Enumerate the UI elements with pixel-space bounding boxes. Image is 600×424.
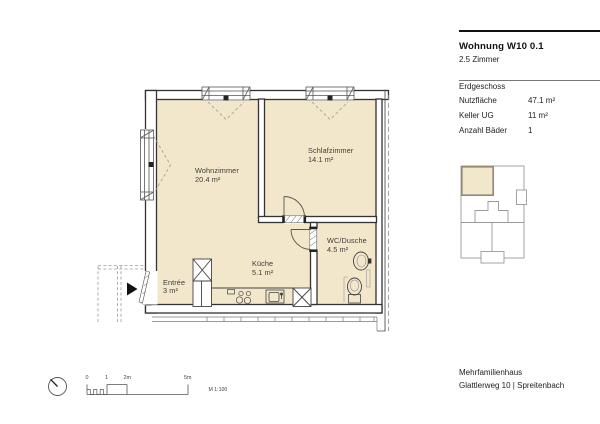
facade-strip xyxy=(152,317,377,331)
room-label-entree: Entrée 3 m² xyxy=(163,279,185,296)
scale-label-5m: 5m xyxy=(184,375,192,381)
panel-divider-rule xyxy=(459,80,600,81)
room-area: 3 m² xyxy=(163,287,185,296)
row-value-keller: 11 m² xyxy=(528,111,548,120)
exterior-dashed-outline xyxy=(98,266,144,325)
room-label-wohnzimmer: Wohnzimmer 20.4 m² xyxy=(195,167,239,184)
site-plan-mini-map xyxy=(461,166,527,263)
scale-ratio-label: M 1:100 xyxy=(209,387,228,393)
room-area: 4.5 m² xyxy=(327,246,367,255)
kitchen-tall-cabinet xyxy=(193,259,212,307)
room-label-kueche: Küche 5.1 m² xyxy=(252,260,273,277)
scale-label-0: 0 xyxy=(86,375,89,381)
room-area: 20.4 m² xyxy=(195,176,239,185)
room-label-wc-dusche: WC/Dusche 4.5 m² xyxy=(327,237,367,254)
entrance-arrow-icon xyxy=(127,283,138,296)
row-label-baeder: Anzahl Bäder xyxy=(459,126,507,135)
north-compass-icon xyxy=(49,378,67,396)
row-label-keller: Keller UG xyxy=(459,111,494,120)
room-label-schlafzimmer: Schlafzimmer 14.1 m² xyxy=(308,147,353,164)
floor-plan-drawing xyxy=(0,0,600,424)
scale-bar xyxy=(87,385,188,395)
footer-building-type: Mehrfamilienhaus xyxy=(459,368,522,377)
room-area: 5.1 m² xyxy=(252,269,273,278)
floorplan-sheet: Wohnzimmer 20.4 m² Schlafzimmer 14.1 m² … xyxy=(0,0,600,424)
footer-address: Glattlerweg 10 | Spreitenbach xyxy=(459,381,564,390)
apartment-subtitle: 2.5 Zimmer xyxy=(459,55,499,64)
site-plan-unit-highlight xyxy=(462,167,493,195)
kitchen-appliance-box xyxy=(293,288,311,307)
row-value-nutzflaeche: 47.1 m² xyxy=(528,96,555,105)
row-value-baeder: 1 xyxy=(528,126,532,135)
scale-label-1: 1 xyxy=(105,375,108,381)
row-label-nutzflaeche: Nutzfläche xyxy=(459,96,497,105)
floor-label: Erdgeschoss xyxy=(459,82,505,91)
apartment-title: Wohnung W10 0.1 xyxy=(459,41,544,52)
scale-label-2m: 2m xyxy=(124,375,132,381)
room-area: 14.1 m² xyxy=(308,156,353,165)
panel-top-rule xyxy=(459,30,600,32)
